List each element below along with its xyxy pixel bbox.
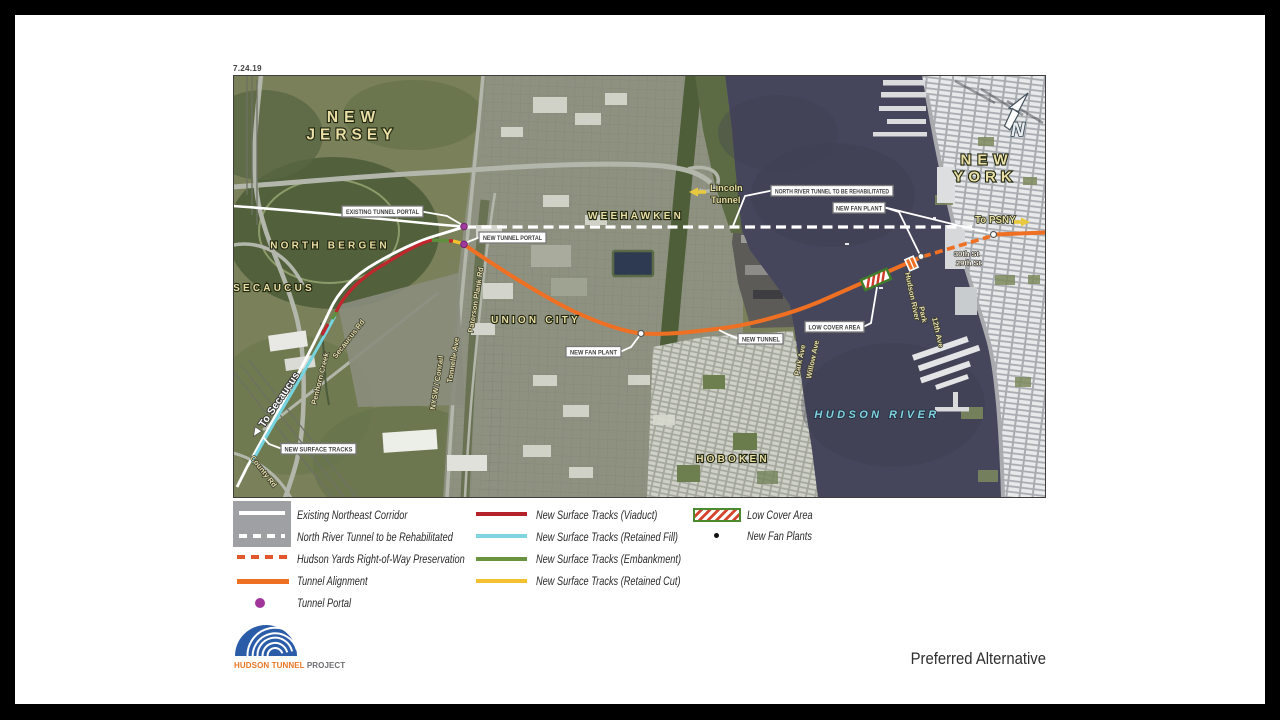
svg-text:YORK: YORK [953, 169, 1016, 186]
svg-text:NEW TUNNEL: NEW TUNNEL [742, 337, 780, 344]
svg-text:NEW TUNNEL PORTAL: NEW TUNNEL PORTAL [483, 235, 542, 242]
svg-text:WEEHAWKEN: WEEHAWKEN [588, 211, 684, 222]
svg-text:NEW: NEW [961, 152, 1014, 169]
svg-text:NEW FAN PLANT: NEW FAN PLANT [570, 350, 618, 357]
svg-text:LOW COVER AREA: LOW COVER AREA [809, 325, 861, 332]
svg-text:NEW SURFACE TRACKS: NEW SURFACE TRACKS [285, 447, 353, 454]
svg-text:HOBOKEN: HOBOKEN [696, 454, 770, 465]
svg-text:NORTH BERGEN: NORTH BERGEN [270, 241, 390, 252]
svg-text:Lincoln: Lincoln [710, 183, 743, 193]
svg-text:30th St: 30th St [954, 250, 980, 259]
svg-text:To PSNY: To PSNY [975, 215, 1016, 226]
svg-text:HUDSON TUNNEL PROJECT: HUDSON TUNNEL PROJECT [234, 661, 345, 670]
svg-text:29th St: 29th St [956, 259, 982, 268]
svg-text:UNION CITY: UNION CITY [491, 315, 581, 326]
svg-text:NEW: NEW [327, 109, 381, 126]
svg-text:EXISTING TUNNEL PORTAL: EXISTING TUNNEL PORTAL [346, 209, 419, 216]
svg-text:NEW FAN PLANT: NEW FAN PLANT [836, 206, 883, 213]
svg-text:SECAUCUS: SECAUCUS [233, 283, 315, 294]
svg-text:N: N [1011, 120, 1026, 141]
svg-text:Tunnel: Tunnel [711, 195, 740, 205]
svg-text:NORTH RIVER TUNNEL TO BE REHAB: NORTH RIVER TUNNEL TO BE REHABILITATED [775, 188, 889, 195]
svg-text:HUDSON RIVER: HUDSON RIVER [814, 409, 939, 421]
svg-text:JERSEY: JERSEY [306, 127, 397, 144]
